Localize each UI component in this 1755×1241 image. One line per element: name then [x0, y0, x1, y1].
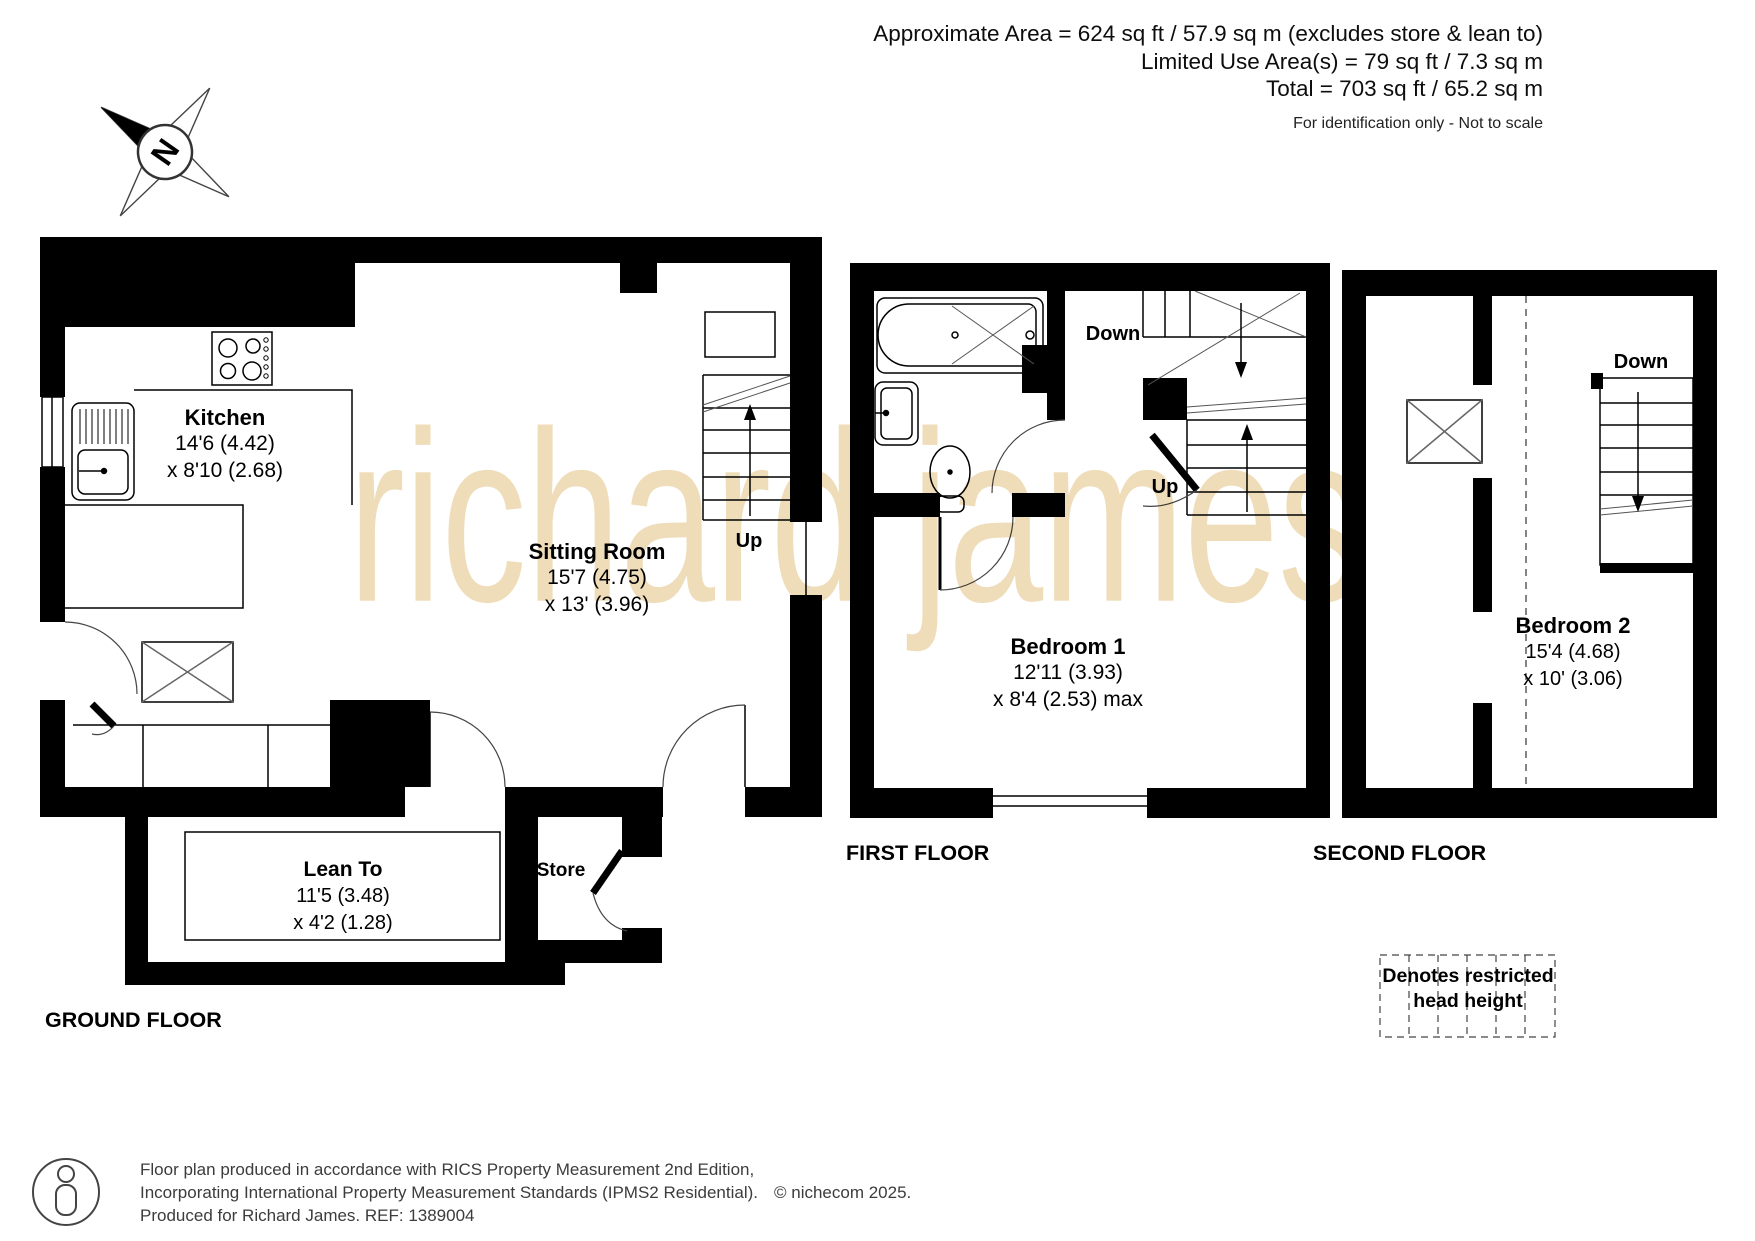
room-name: Sitting Room	[529, 539, 666, 565]
compass-icon: N	[56, 43, 273, 260]
toilet-icon	[930, 446, 970, 512]
stairs-down-second	[1600, 378, 1693, 565]
footer-line: Floor plan produced in accordance with R…	[140, 1158, 911, 1181]
room-name: Bedroom 2	[1516, 613, 1631, 639]
stairs-down-first	[1143, 291, 1306, 385]
basin-icon	[875, 382, 918, 445]
room-dim: x 8'4 (2.53) max	[993, 687, 1143, 714]
ground-floor-plan	[40, 237, 822, 985]
limited-use-area: Limited Use Area(s) = 79 sq ft / 7.3 sq …	[873, 48, 1543, 76]
room-dim: 14'6 (4.42)	[167, 431, 283, 458]
footer-line: Incorporating International Property Mea…	[140, 1181, 911, 1204]
sink-icon	[72, 403, 134, 500]
ground-floor-title: GROUND FLOOR	[45, 1008, 222, 1033]
area-summary: Approximate Area = 624 sq ft / 57.9 sq m…	[873, 20, 1543, 137]
floor-plan-drawing: N	[0, 0, 1755, 1241]
hob-icon	[212, 332, 272, 385]
room-name: Lean To	[293, 857, 392, 883]
room-dim: x 8'10 (2.68)	[167, 458, 283, 485]
footer-line: Produced for Richard James. REF: 1389004	[140, 1204, 911, 1227]
sitting-room-label: Sitting Room 15'7 (4.75) x 13' (3.96)	[529, 539, 666, 618]
legend-line: head height	[1381, 989, 1555, 1014]
storage-unit-icon	[142, 642, 233, 702]
identification-note: For identification only - Not to scale	[873, 110, 1543, 138]
room-dim: 12'11 (3.93)	[993, 660, 1143, 687]
second-floor-title: SECOND FLOOR	[1313, 841, 1486, 866]
footer-line2-text: Incorporating International Property Mea…	[140, 1183, 758, 1202]
first-floor-plan	[850, 263, 1330, 818]
room-dim: 15'4 (4.68)	[1516, 639, 1631, 666]
person-icon	[33, 1159, 99, 1225]
bath-icon	[877, 298, 1043, 373]
down-label-second: Down	[1614, 351, 1668, 374]
bedroom1-label: Bedroom 1 12'11 (3.93) x 8'4 (2.53) max	[993, 634, 1143, 713]
room-dim: x 13' (3.96)	[529, 592, 666, 619]
kitchen-label: Kitchen 14'6 (4.42) x 8'10 (2.68)	[167, 405, 283, 484]
first-floor-title: FIRST FLOOR	[846, 841, 989, 866]
room-dim: 11'5 (3.48)	[293, 883, 392, 910]
room-name: Bedroom 1	[993, 634, 1143, 660]
up-label-ground: Up	[736, 530, 763, 553]
total-area: Total = 703 sq ft / 65.2 sq m	[873, 75, 1543, 103]
footer-disclaimer: Floor plan produced in accordance with R…	[140, 1158, 911, 1227]
copyright: © nichecom 2025.	[774, 1183, 911, 1202]
store-label: Store	[537, 860, 586, 882]
stairs-up-first	[1187, 398, 1306, 515]
room-dim: x 4'2 (1.28)	[293, 910, 392, 937]
hatch-icon	[1407, 400, 1482, 463]
stairs-up-ground	[703, 312, 790, 520]
room-dim: x 10' (3.06)	[1516, 666, 1631, 693]
legend-line: Denotes restricted	[1381, 964, 1555, 989]
approximate-area: Approximate Area = 624 sq ft / 57.9 sq m…	[873, 20, 1543, 48]
bedroom2-label: Bedroom 2 15'4 (4.68) x 10' (3.06)	[1516, 613, 1631, 692]
room-name: Kitchen	[167, 405, 283, 431]
down-label-first: Down	[1086, 323, 1140, 346]
lean-to-label: Lean To 11'5 (3.48) x 4'2 (1.28)	[293, 857, 392, 936]
room-dim: 15'7 (4.75)	[529, 565, 666, 592]
up-label-first: Up	[1152, 476, 1179, 499]
floorplan-page: Approximate Area = 624 sq ft / 57.9 sq m…	[0, 0, 1755, 1241]
restricted-height-legend: Denotes restricted head height	[1381, 964, 1555, 1014]
